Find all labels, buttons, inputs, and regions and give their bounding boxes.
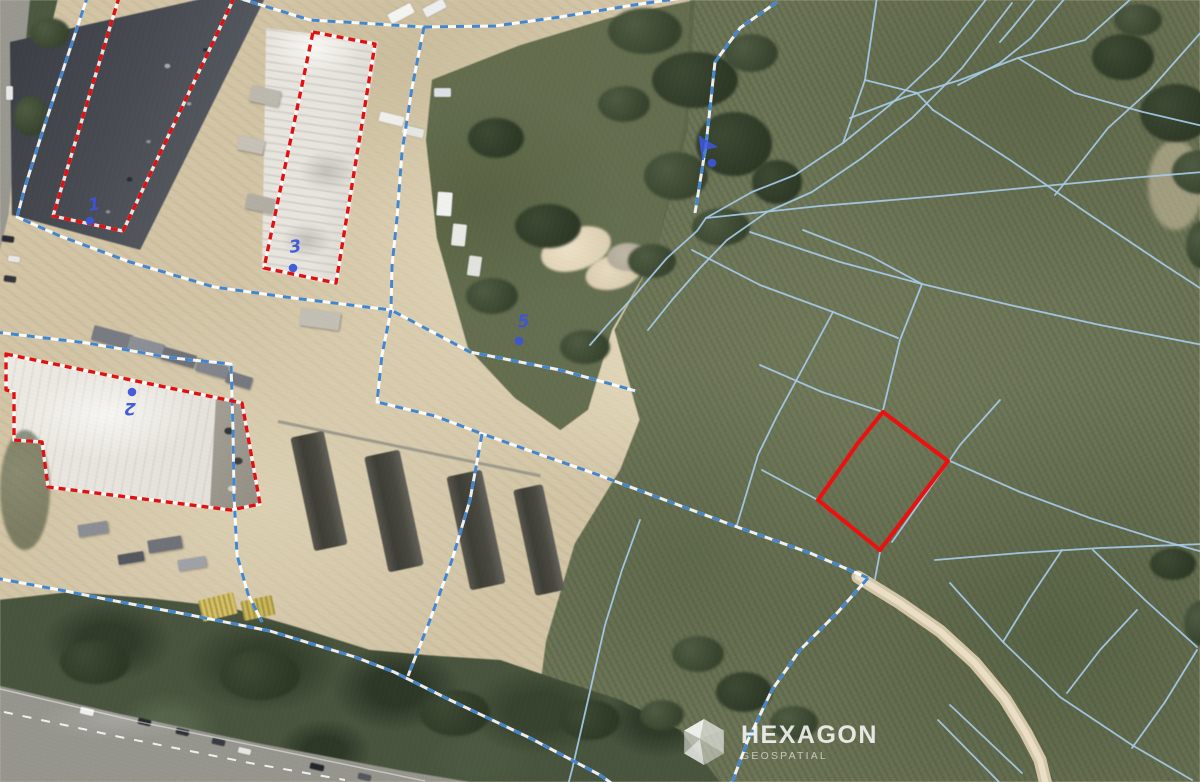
selected-parcel[interactable] (818, 412, 948, 550)
parcel-boundary-line (590, 0, 988, 345)
selected-building-3[interactable] (264, 32, 375, 283)
parcel-boundary-line (803, 230, 922, 284)
selected-building-2 (6, 354, 260, 510)
selected-building-3 (264, 32, 375, 283)
parcel-number-label: 2 (124, 398, 136, 418)
parcel-boundary-line (933, 110, 1200, 290)
cadastral-boundary-line (377, 310, 868, 578)
cadastral-boundary-line (424, 0, 690, 27)
cadastral-boundary-line (695, 2, 777, 213)
parcel-boundary-line (958, 0, 1066, 85)
road-marking (0, 689, 425, 781)
dirt-track (858, 577, 1046, 782)
parcel-boundary-line (706, 172, 1200, 218)
parcel-marker-dot (289, 264, 298, 273)
cadastral-boundary-line (17, 0, 636, 391)
parcel-boundary-line (760, 365, 880, 411)
watermark-text: HEXAGON GEOSPATIAL (741, 723, 878, 762)
cadastral-boundary-line (377, 310, 868, 578)
parcel-boundary-line (935, 544, 1200, 560)
selected-building-2[interactable] (6, 354, 260, 510)
parcel-boundary-line (1055, 30, 1200, 195)
parcel-boundary-line (883, 284, 922, 410)
cadastral-boundary-line (0, 578, 614, 782)
cadastral-overlay: 1352 (0, 0, 1200, 782)
parcel-number-label: 3 (288, 236, 303, 257)
parcel-boundary-line (865, 80, 933, 110)
parcel-boundary-line (1067, 610, 1137, 693)
parcel-boundary-line (762, 470, 816, 499)
parcel-boundary-line (692, 250, 898, 338)
parcel-boundary-line (875, 552, 880, 579)
cadastral-boundary-line (408, 434, 482, 676)
flag-marker-icon (699, 136, 718, 151)
parcel-marker-dot (128, 388, 137, 397)
parcel-marker-dot (515, 337, 524, 346)
flag-marker-dot (708, 159, 717, 168)
selected-building-1[interactable] (53, 0, 236, 231)
parcel-boundary-line (850, 0, 1133, 118)
parcel-boundary-line (843, 0, 877, 143)
cadastral-boundary-line (17, 0, 636, 391)
parcel-boundary-line (892, 400, 1000, 542)
cadastral-boundary-line (0, 332, 262, 622)
parcel-number-label: 5 (517, 312, 531, 333)
parcel-boundary-line (737, 312, 833, 525)
parcel-boundary-line (950, 461, 1200, 552)
parcel-boundary-line (938, 720, 1002, 782)
watermark-title: HEXAGON (741, 723, 878, 748)
cadastral-boundary-line (0, 578, 614, 782)
map-canvas[interactable]: 1352 HEXAGON GEOSPATIAL (0, 0, 1200, 782)
road-marking (4, 712, 345, 780)
parcel-boundary-line (750, 232, 1200, 345)
cadastral-boundary-line (408, 434, 482, 676)
cadastral-boundary-line (0, 332, 262, 622)
parcel-marker-dot (86, 217, 95, 226)
parcel-boundary-line (1003, 550, 1062, 642)
parcel-number-label: 1 (87, 194, 102, 216)
hexagon-logo-icon (681, 717, 727, 767)
parcel-boundary-line (1000, 0, 1037, 42)
parcel-boundary-line (1093, 550, 1197, 647)
hexagon-watermark: HEXAGON GEOSPATIAL (681, 717, 878, 767)
watermark-subtitle: GEOSPATIAL (741, 751, 878, 762)
parcel-boundary-line (568, 520, 640, 782)
parcel-boundary-line (1018, 58, 1200, 126)
dirt-track (858, 577, 1046, 782)
parcel-boundary-line (1132, 650, 1197, 748)
selected-building-1 (53, 0, 236, 231)
